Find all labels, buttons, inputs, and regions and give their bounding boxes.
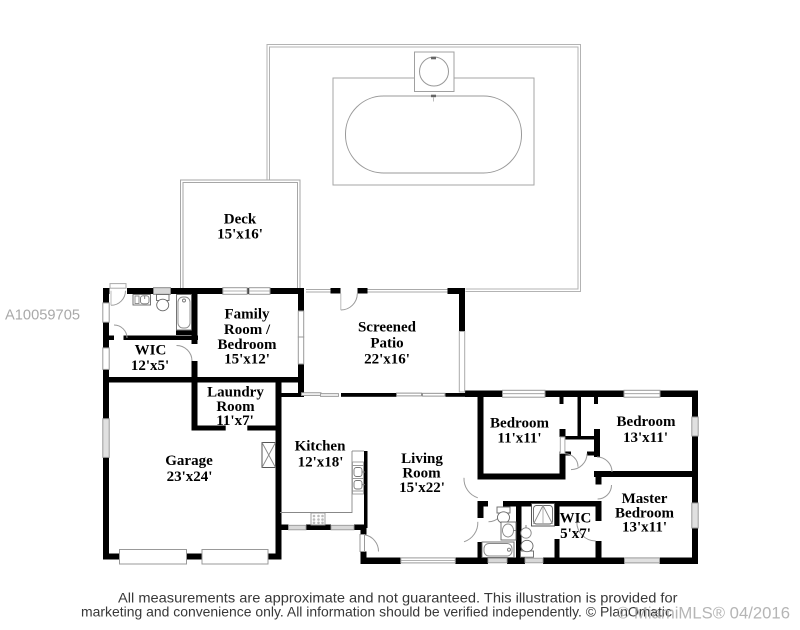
svg-text:marketing and convenience only: marketing and convenience only. All info… [81,604,672,620]
svg-text:13'x11': 13'x11' [622,520,667,536]
svg-text:Kitchen: Kitchen [295,439,346,455]
svg-text:WIC: WIC [135,343,167,359]
svg-text:12'x5': 12'x5' [131,358,169,374]
svg-text:11'x7': 11'x7' [216,413,254,429]
svg-text:23'x24': 23'x24' [167,469,213,485]
svg-text:Patio: Patio [370,336,403,352]
svg-text:15'x22': 15'x22' [399,480,445,496]
svg-text:15'x12': 15'x12' [224,352,270,368]
svg-text:A10059705: A10059705 [5,307,80,324]
svg-text:11'x11': 11'x11' [497,431,541,447]
svg-text:Screened: Screened [358,320,417,336]
svg-text:WIC: WIC [560,511,592,527]
svg-text:Bedroom: Bedroom [617,414,676,430]
svg-text:5'x7': 5'x7' [560,526,591,542]
svg-text:13'x11': 13'x11' [623,430,668,446]
svg-text:Deck: Deck [224,212,257,228]
svg-text:Bedroom: Bedroom [490,416,549,432]
svg-text:Room /: Room / [224,322,271,338]
svg-text:Family: Family [225,307,270,323]
svg-text:12'x18': 12'x18' [298,455,344,471]
svg-text:© MiamiMLS® 04/2016: © MiamiMLS® 04/2016 [617,605,790,623]
svg-text:Garage: Garage [165,453,213,469]
svg-text:22'x16': 22'x16' [364,352,410,368]
svg-text:15'x16': 15'x16' [217,227,263,243]
